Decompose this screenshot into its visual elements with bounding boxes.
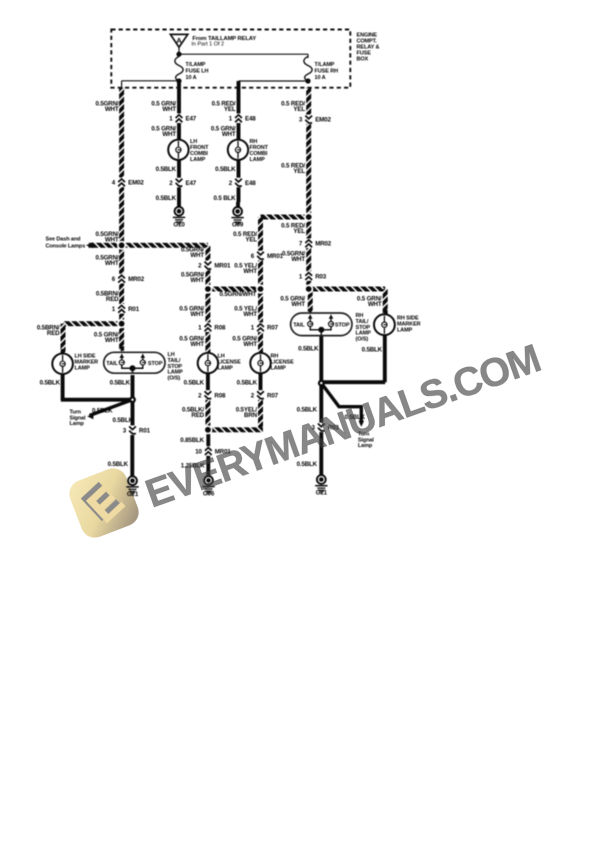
- svg-text:1: 1: [229, 116, 233, 123]
- svg-text:1: 1: [251, 325, 255, 332]
- svg-text:YEL: YEL: [224, 106, 236, 113]
- svg-text:WHT: WHT: [222, 131, 236, 138]
- svg-text:BOX: BOX: [357, 57, 369, 63]
- svg-text:R07: R07: [267, 392, 279, 399]
- svg-text:WHT: WHT: [162, 131, 176, 138]
- svg-text:STOP: STOP: [148, 361, 163, 367]
- svg-text:0.5BLK: 0.5BLK: [184, 380, 205, 387]
- svg-text:YEL: YEL: [293, 228, 305, 235]
- svg-text:RELAY &: RELAY &: [357, 45, 380, 51]
- svg-text:R01: R01: [139, 428, 151, 435]
- svg-text:E47: E47: [186, 180, 197, 187]
- svg-text:TAIL: TAIL: [293, 323, 305, 329]
- svg-text:WHT: WHT: [105, 106, 119, 113]
- svg-text:0.5BLK: 0.5BLK: [110, 380, 131, 387]
- svg-text:WHT: WHT: [162, 106, 176, 113]
- svg-text:FUSE LH: FUSE LH: [186, 68, 209, 74]
- svg-text:In Part 1 Of 2: In Part 1 Of 2: [191, 42, 224, 48]
- svg-text:See Dash and: See Dash and: [46, 237, 81, 243]
- svg-text:0.5BLK: 0.5BLK: [298, 346, 319, 353]
- svg-text:WHT: WHT: [105, 237, 119, 244]
- svg-text:6: 6: [112, 276, 116, 283]
- svg-text:G21: G21: [316, 490, 328, 497]
- svg-text:0.85BLK: 0.85BLK: [180, 437, 204, 444]
- svg-text:STOP: STOP: [335, 323, 350, 329]
- svg-text:EM02: EM02: [128, 180, 144, 187]
- svg-text:2: 2: [198, 263, 202, 270]
- svg-text:0.5BLK: 0.5BLK: [237, 380, 258, 387]
- svg-text:A: A: [176, 36, 182, 45]
- svg-text:G10: G10: [173, 221, 185, 228]
- svg-text:LAMP: LAMP: [271, 366, 287, 372]
- svg-text:EM02: EM02: [315, 117, 331, 124]
- svg-text:6: 6: [251, 253, 255, 260]
- svg-text:R03: R03: [315, 273, 327, 280]
- svg-text:WHT: WHT: [291, 256, 305, 263]
- svg-text:E48: E48: [245, 116, 256, 123]
- svg-text:10 A: 10 A: [186, 75, 197, 81]
- svg-text:WHT: WHT: [190, 277, 204, 284]
- svg-text:R08: R08: [214, 392, 226, 399]
- svg-text:T/LAMP: T/LAMP: [315, 62, 335, 68]
- svg-text:LAMP: LAMP: [397, 328, 413, 334]
- svg-text:3: 3: [299, 117, 303, 124]
- svg-text:(O/S): (O/S): [356, 337, 369, 343]
- svg-text:1: 1: [169, 116, 173, 123]
- svg-text:YEL: YEL: [293, 106, 305, 113]
- svg-text:WHT: WHT: [190, 311, 204, 318]
- svg-text:T/LAMP: T/LAMP: [186, 62, 206, 68]
- svg-text:1: 1: [112, 306, 116, 313]
- svg-text:WHT: WHT: [243, 341, 257, 348]
- svg-text:0.5BLK: 0.5BLK: [40, 380, 61, 387]
- svg-text:0.5BLK: 0.5BLK: [113, 417, 134, 424]
- svg-text:RED: RED: [106, 296, 119, 303]
- svg-text:0.5BLK: 0.5BLK: [156, 195, 177, 202]
- svg-text:WHT: WHT: [190, 252, 204, 259]
- svg-text:LAMP: LAMP: [190, 157, 206, 163]
- svg-text:R07: R07: [267, 325, 279, 332]
- svg-text:WHT: WHT: [291, 301, 305, 308]
- svg-text:E47: E47: [186, 116, 197, 123]
- svg-text:BRN: BRN: [244, 412, 258, 419]
- svg-text:10 A: 10 A: [315, 75, 326, 81]
- svg-text:MR02: MR02: [315, 241, 332, 248]
- svg-text:WHT: WHT: [190, 341, 204, 348]
- svg-text:LAMP: LAMP: [75, 366, 91, 372]
- svg-text:RED: RED: [191, 412, 204, 419]
- svg-text:2: 2: [198, 392, 202, 399]
- svg-text:G21: G21: [127, 491, 139, 498]
- svg-text:3: 3: [123, 428, 127, 435]
- svg-text:2: 2: [229, 180, 233, 187]
- svg-text:0.5BLK: 0.5BLK: [362, 347, 383, 354]
- svg-text:WHT: WHT: [105, 337, 119, 344]
- svg-text:(O/S): (O/S): [168, 376, 181, 382]
- svg-text:COMPT.: COMPT.: [357, 38, 378, 44]
- svg-text:MR02: MR02: [128, 276, 145, 283]
- svg-text:2: 2: [251, 392, 255, 399]
- svg-text:FUSE RH: FUSE RH: [315, 68, 339, 74]
- svg-text:ENGINE: ENGINE: [357, 32, 378, 38]
- svg-text:4: 4: [112, 180, 116, 187]
- svg-text:TAIL: TAIL: [106, 361, 118, 367]
- svg-text:R08: R08: [214, 325, 226, 332]
- svg-text:YEL: YEL: [293, 168, 305, 175]
- svg-text:1: 1: [198, 325, 202, 332]
- svg-text:2: 2: [169, 180, 173, 187]
- svg-text:0.5BLK: 0.5BLK: [156, 166, 177, 173]
- svg-text:WHT: WHT: [105, 260, 119, 267]
- svg-text:0.5BLK: 0.5BLK: [215, 166, 236, 173]
- svg-text:Lamp: Lamp: [70, 421, 85, 427]
- svg-text:E48: E48: [245, 180, 256, 187]
- svg-text:MR01: MR01: [214, 263, 231, 270]
- svg-text:RED: RED: [47, 330, 60, 337]
- svg-text:0.5 BLK: 0.5 BLK: [214, 195, 237, 202]
- svg-text:7: 7: [299, 241, 303, 248]
- svg-text:G09: G09: [232, 222, 244, 229]
- svg-text:WHT: WHT: [243, 311, 257, 318]
- svg-text:FUSE: FUSE: [357, 51, 372, 57]
- svg-text:WHT: WHT: [243, 268, 257, 275]
- svg-text:0.5BLK: 0.5BLK: [92, 408, 113, 415]
- svg-text:R01: R01: [128, 306, 140, 313]
- svg-text:YEL: YEL: [245, 237, 257, 244]
- svg-text:LAMP: LAMP: [218, 366, 234, 372]
- svg-text:WHT: WHT: [368, 301, 382, 308]
- svg-text:0.5BLK: 0.5BLK: [108, 461, 129, 468]
- svg-text:1: 1: [299, 273, 303, 280]
- svg-text:0.5GRN/WHT: 0.5GRN/WHT: [220, 291, 257, 298]
- svg-text:Console Lamps: Console Lamps: [46, 243, 86, 249]
- svg-text:LAMP: LAMP: [250, 157, 266, 163]
